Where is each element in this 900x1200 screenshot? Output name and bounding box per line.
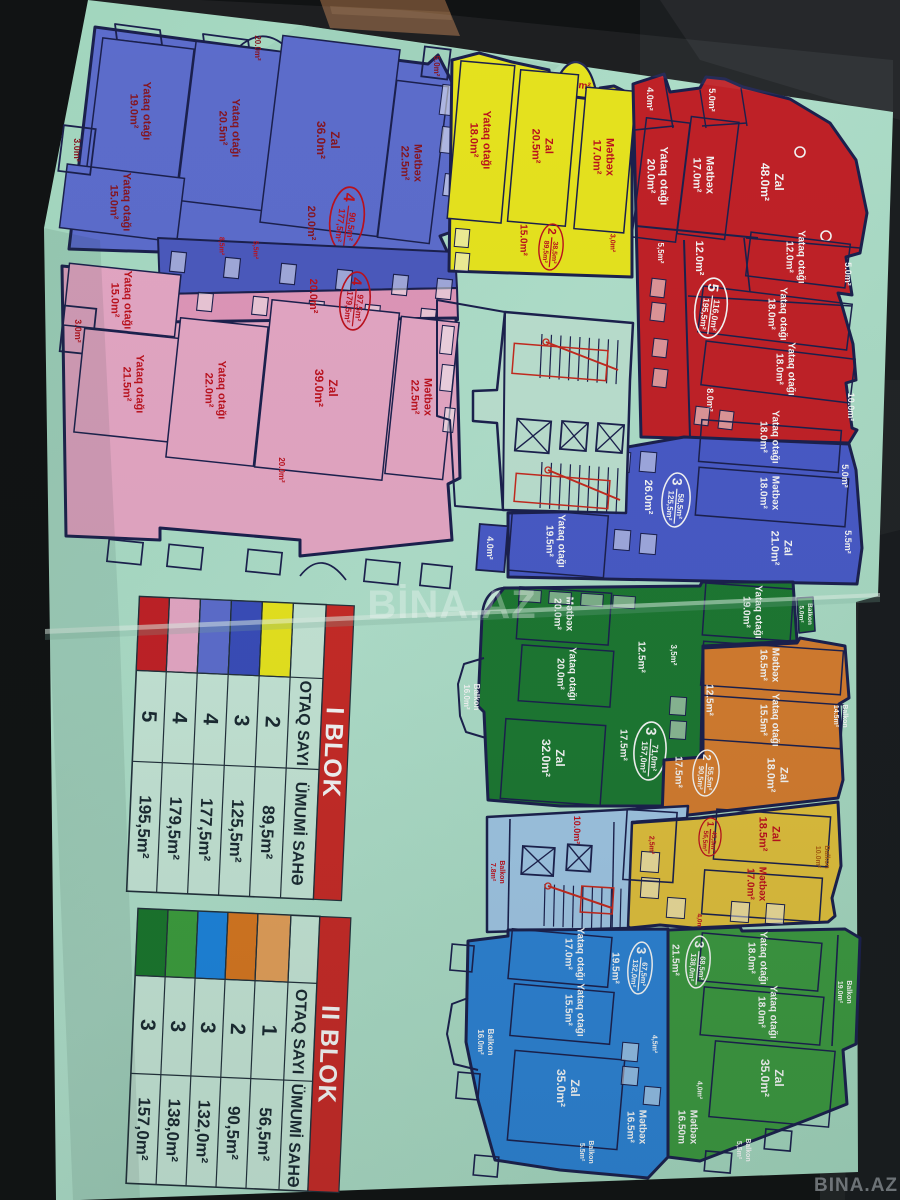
- svg-text:BİNA.AZ: BİNA.AZ: [367, 583, 536, 627]
- svg-text:BINA.AZ: BINA.AZ: [814, 1175, 898, 1196]
